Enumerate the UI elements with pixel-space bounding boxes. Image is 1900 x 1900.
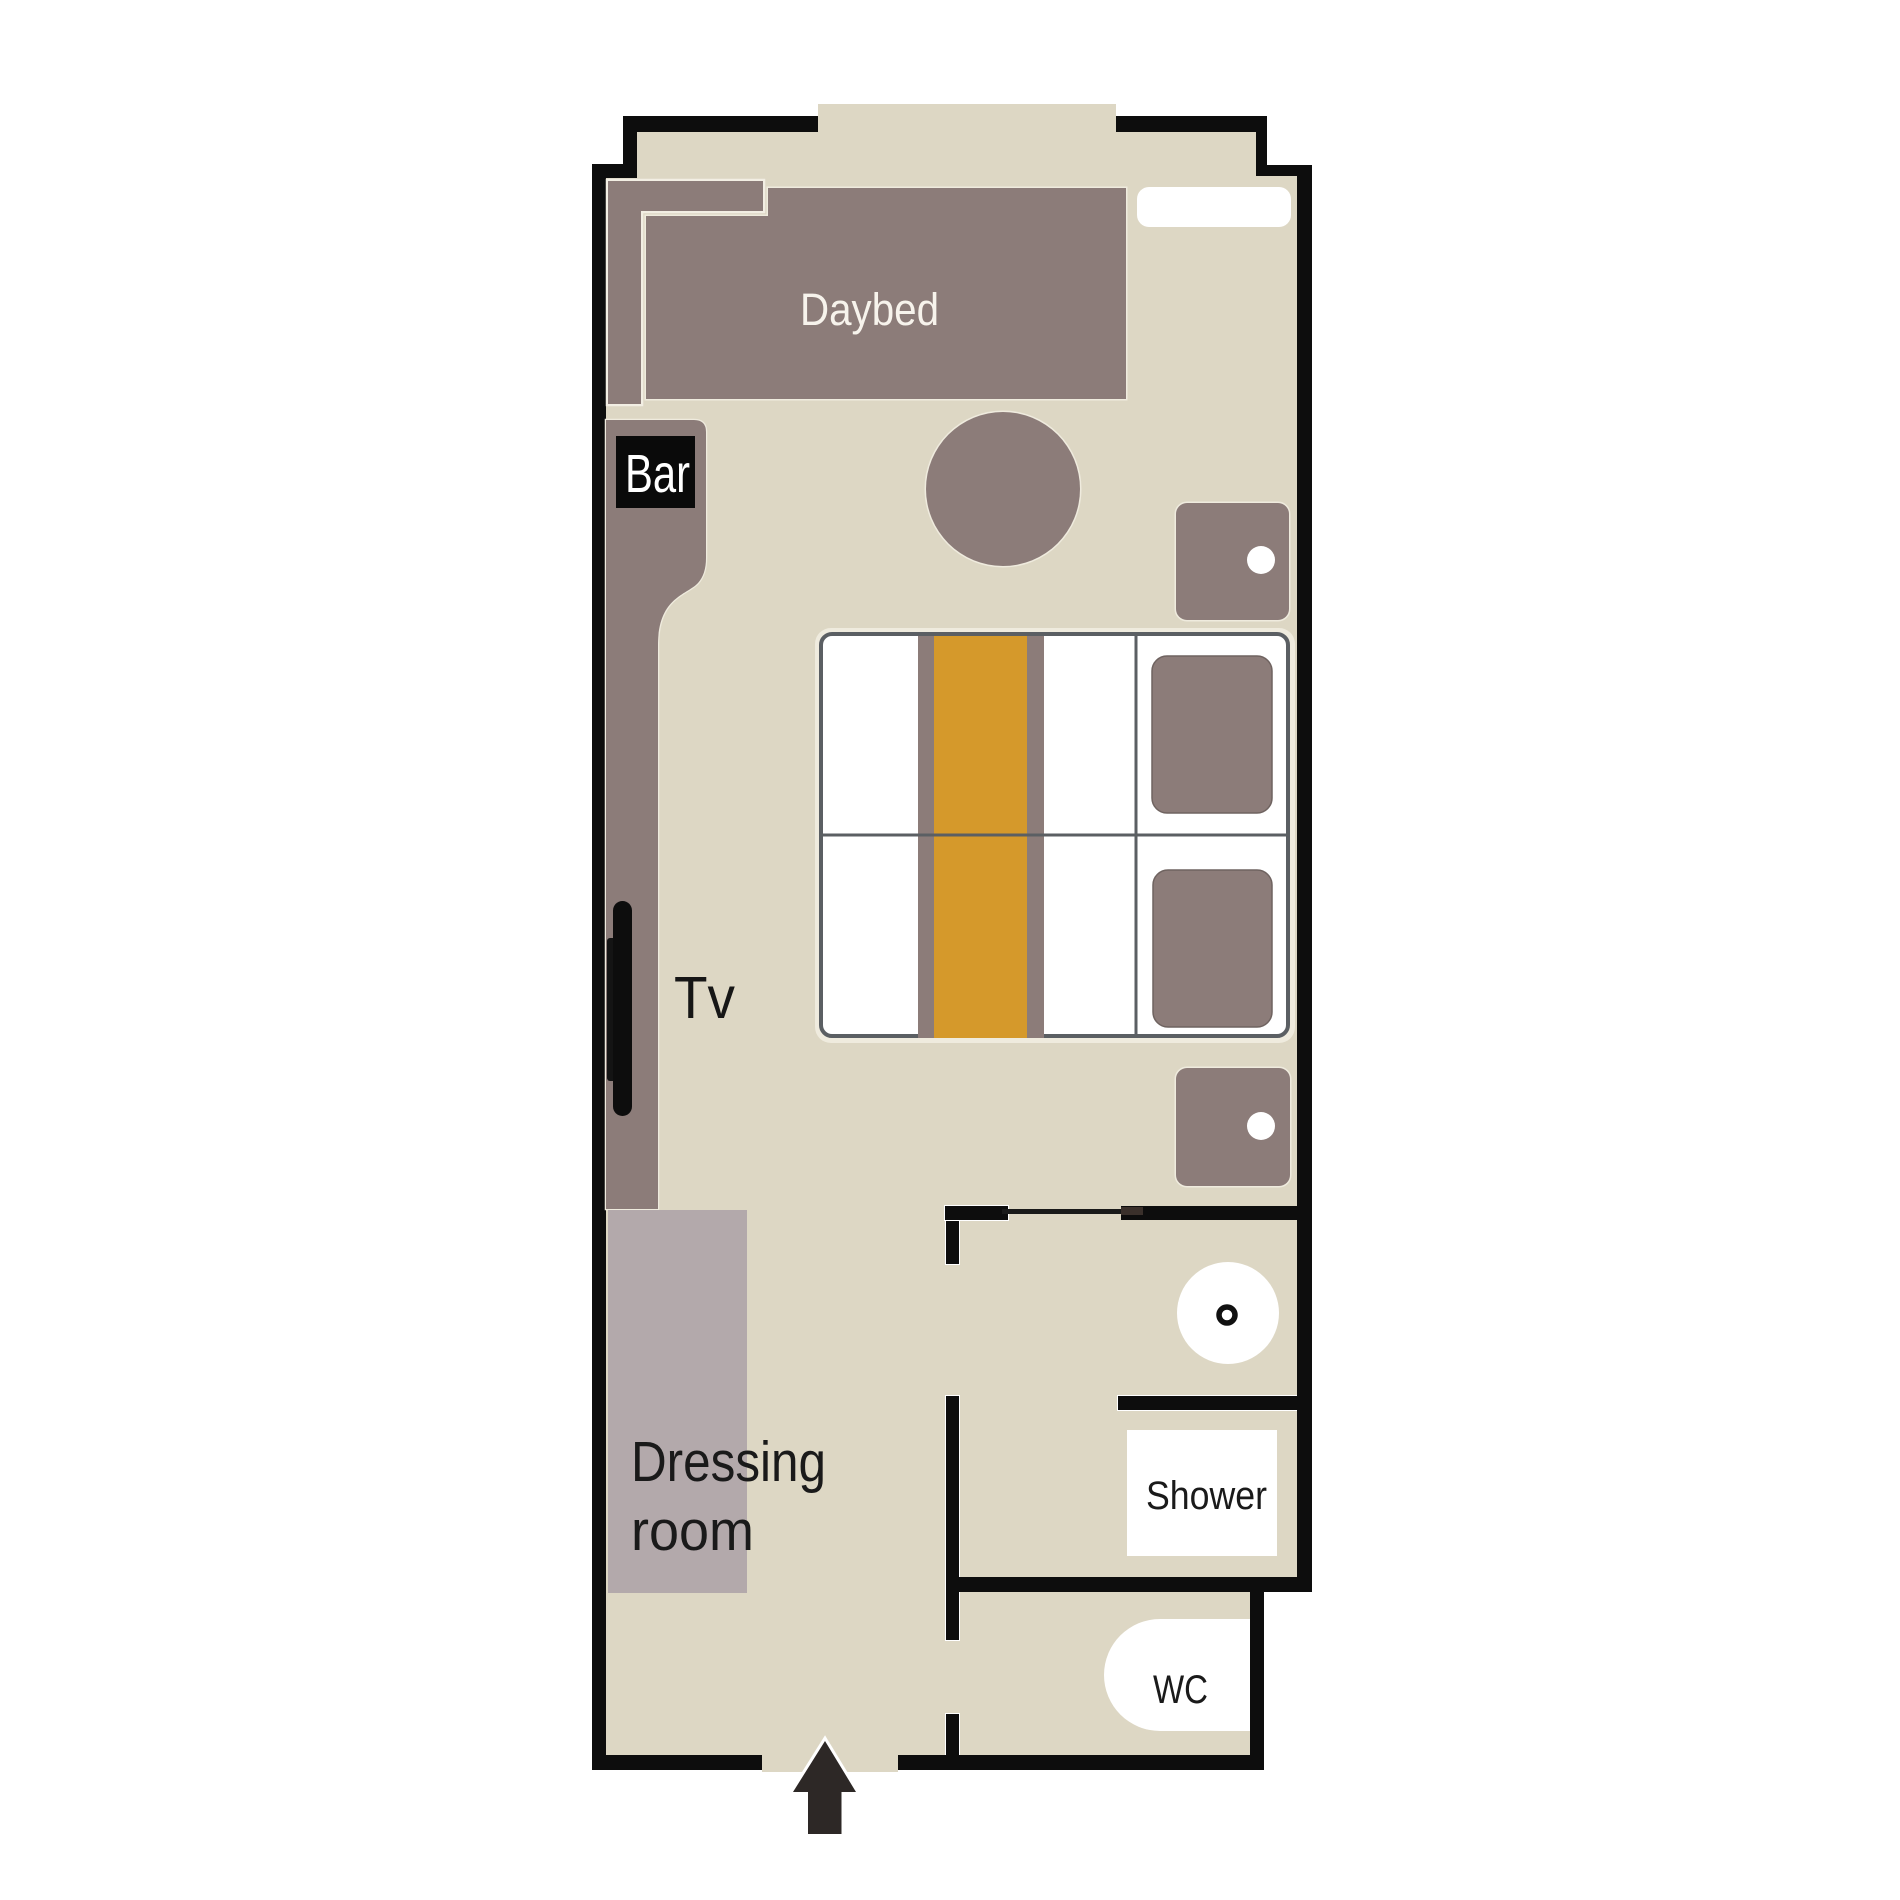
- svg-text:Bar: Bar: [625, 444, 690, 504]
- svg-text:Shower: Shower: [1146, 1474, 1267, 1518]
- svg-text:WC: WC: [1153, 1668, 1208, 1712]
- svg-text:Tv: Tv: [674, 965, 735, 1031]
- svg-text:room: room: [631, 1499, 754, 1563]
- svg-text:Dressing: Dressing: [631, 1430, 826, 1494]
- svg-text:Daybed: Daybed: [800, 284, 939, 335]
